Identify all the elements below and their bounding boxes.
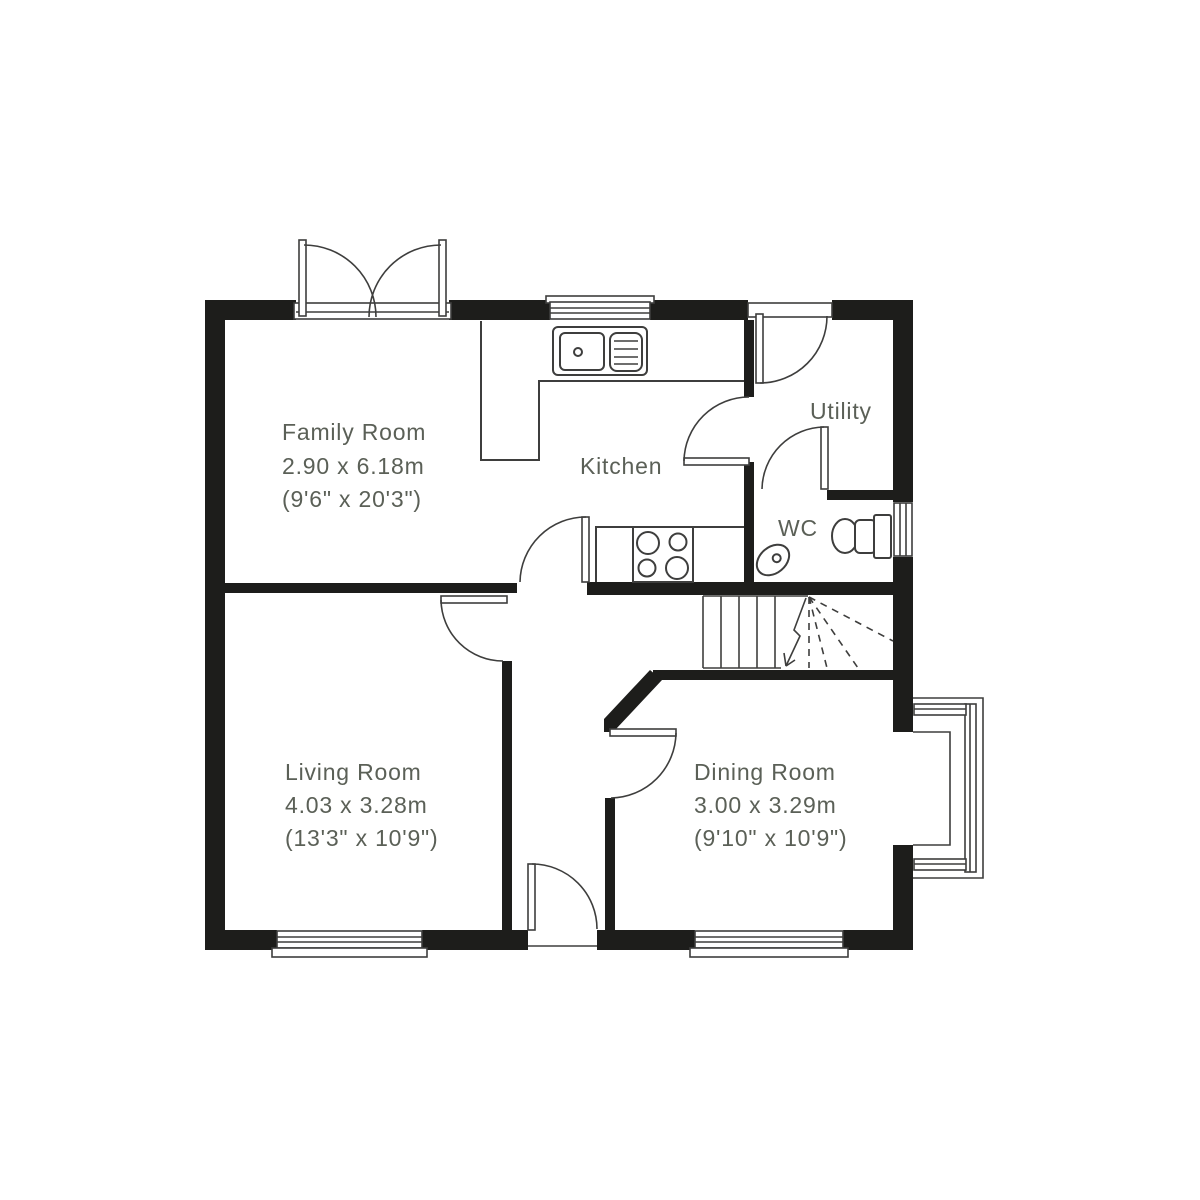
french-door-leaf bbox=[299, 240, 306, 316]
dining-room-door bbox=[610, 729, 676, 798]
stair-direction-arrow bbox=[786, 598, 806, 666]
wall-segment bbox=[893, 300, 913, 502]
living-room-label: Living Room bbox=[285, 759, 422, 785]
door-leaf bbox=[582, 517, 589, 582]
wall-segment bbox=[650, 300, 748, 320]
door-swing-arc bbox=[532, 864, 597, 929]
living-room-metric: 4.03 x 3.28m bbox=[285, 792, 428, 818]
family-room-metric: 2.90 x 6.18m bbox=[282, 453, 425, 479]
wall-segment bbox=[827, 490, 893, 500]
bay-window bbox=[913, 698, 983, 878]
wall-segment bbox=[744, 320, 754, 397]
wall-segment bbox=[225, 583, 517, 593]
wall-segment bbox=[653, 670, 893, 680]
stair-dashed-line bbox=[809, 597, 858, 668]
wall-segment bbox=[422, 930, 528, 950]
stair-dashed-line bbox=[809, 597, 827, 668]
wall-segment bbox=[449, 300, 550, 320]
dining-room-label: Dining Room bbox=[694, 759, 836, 785]
stairs bbox=[703, 596, 893, 668]
living-room-imperial: (13'3" x 10'9") bbox=[285, 825, 438, 851]
wall-segment bbox=[605, 798, 615, 930]
door-swing-arc bbox=[762, 427, 824, 489]
hob-burner bbox=[639, 560, 656, 577]
living-room-door bbox=[441, 596, 507, 661]
kitchen-label: Kitchen bbox=[580, 453, 662, 479]
door-swing-arc bbox=[520, 517, 586, 582]
toilet-seat bbox=[855, 520, 876, 553]
wall-segment bbox=[744, 462, 754, 583]
door-swing-arc bbox=[684, 397, 749, 461]
windows bbox=[272, 296, 983, 957]
wall-segment bbox=[597, 930, 695, 950]
wc-basin bbox=[751, 538, 795, 581]
wall-segment bbox=[502, 661, 512, 930]
dining-room-window bbox=[690, 931, 848, 957]
wall-segment bbox=[893, 845, 913, 950]
wc-fixtures bbox=[751, 515, 891, 582]
door-swing-arc bbox=[760, 316, 827, 383]
utility-label: Utility bbox=[810, 398, 872, 424]
bay-seat bbox=[913, 732, 950, 845]
floor-plan: Family Room 2.90 x 6.18m (9'6" x 20'3") … bbox=[0, 0, 1200, 1200]
door-swing-arc bbox=[441, 600, 503, 661]
hob-burner bbox=[637, 532, 659, 554]
door-leaf bbox=[528, 864, 535, 930]
kitchen-hall-door bbox=[520, 517, 589, 582]
floor-plan-page: Family Room 2.90 x 6.18m (9'6" x 20'3") … bbox=[0, 0, 1200, 1200]
kitchen-utility-door bbox=[684, 397, 749, 465]
toilet-cistern bbox=[874, 515, 891, 558]
hob-burner bbox=[670, 534, 687, 551]
room-labels: Family Room 2.90 x 6.18m (9'6" x 20'3") … bbox=[282, 398, 872, 851]
stair-dashed-line bbox=[809, 597, 893, 641]
sink-drainer bbox=[610, 333, 642, 371]
door-leaf bbox=[610, 729, 676, 736]
hob bbox=[596, 527, 744, 582]
wall-segment bbox=[205, 300, 225, 950]
wc-label: WC bbox=[778, 515, 818, 541]
door-leaf bbox=[756, 314, 763, 383]
door-swing-arc bbox=[611, 733, 676, 798]
wall-segment bbox=[205, 930, 277, 950]
kitchen-fixtures bbox=[481, 321, 744, 582]
kitchen-window bbox=[546, 296, 654, 319]
wall-segment bbox=[587, 582, 893, 595]
door-leaf bbox=[821, 427, 828, 489]
wc-window bbox=[894, 503, 912, 556]
hob-burner bbox=[666, 557, 688, 579]
living-room-window bbox=[272, 931, 427, 957]
wc-door bbox=[762, 427, 828, 489]
family-room-imperial: (9'6" x 20'3") bbox=[282, 486, 422, 512]
door-leaf bbox=[684, 458, 749, 465]
family-room-label: Family Room bbox=[282, 419, 426, 445]
french-doors bbox=[294, 240, 451, 319]
door-leaf bbox=[441, 596, 507, 603]
dining-room-imperial: (9'10" x 10'9") bbox=[694, 825, 847, 851]
wall-segment bbox=[893, 557, 913, 732]
front-door bbox=[528, 864, 597, 946]
kitchen-sink bbox=[553, 327, 647, 375]
sink-drain bbox=[574, 348, 582, 356]
french-door-leaf bbox=[439, 240, 446, 316]
toilet bbox=[832, 515, 891, 558]
utility-exterior-door bbox=[748, 303, 832, 383]
dining-room-metric: 3.00 x 3.29m bbox=[694, 792, 837, 818]
exterior-walls bbox=[205, 300, 913, 950]
